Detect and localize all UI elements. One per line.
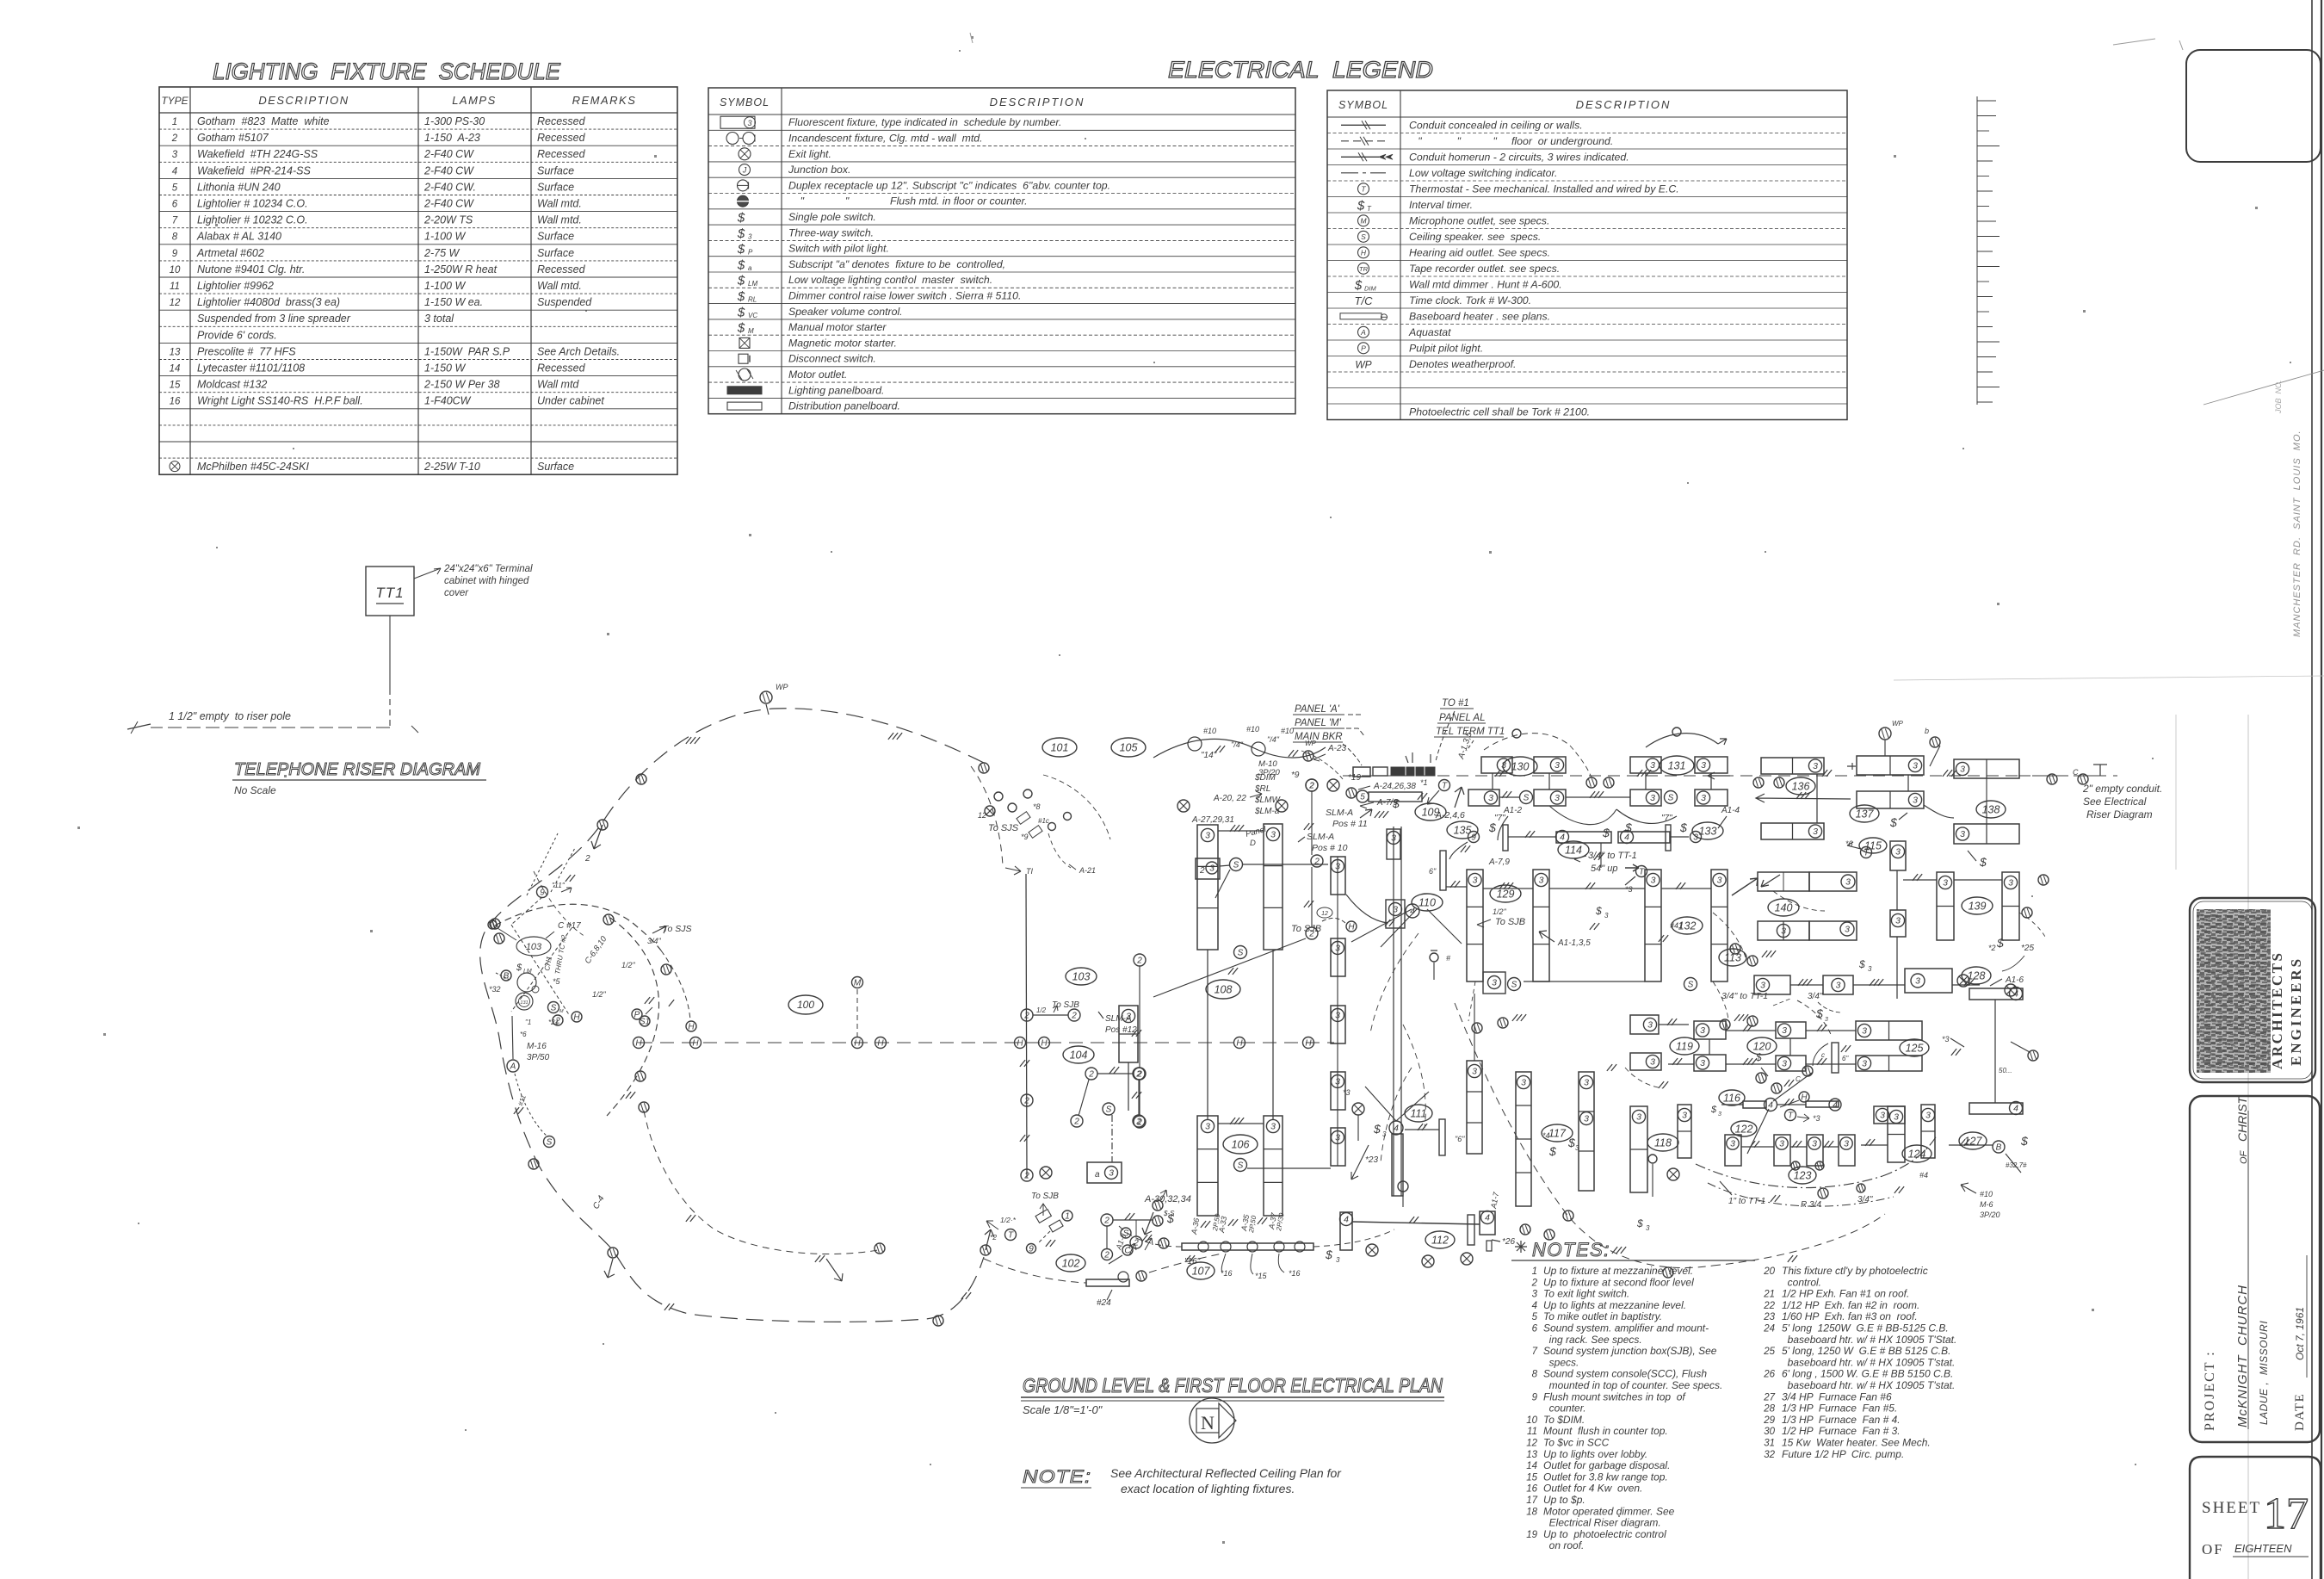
- svg-text:3: 3: [1960, 829, 1965, 839]
- svg-text:2: 2: [584, 854, 590, 864]
- svg-text:Single pole switch.: Single pole switch.: [788, 211, 876, 223]
- svg-text:H: H: [573, 1013, 580, 1023]
- svg-text:1-F40CW: 1-F40CW: [424, 395, 472, 407]
- svg-text:3: 3: [1335, 1133, 1340, 1143]
- svg-text:Nutone #9401 Clg. htr.: Nutone #9401 Clg. htr.: [197, 263, 305, 276]
- svg-text:12: 12: [978, 811, 986, 820]
- svg-text:7: 7: [172, 216, 178, 226]
- svg-text:3: 3: [1532, 1290, 1538, 1300]
- svg-text:RL: RL: [748, 296, 757, 304]
- svg-text:ARCHITECTS: ARCHITECTS: [2269, 951, 2285, 1069]
- svg-text:2: 2: [1531, 1278, 1538, 1288]
- svg-text:Speaker volume control.: Speaker volume control.: [788, 306, 903, 318]
- svg-text:128: 128: [1968, 969, 1986, 981]
- svg-text:To $DIM.: To $DIM.: [1543, 1414, 1585, 1426]
- svg-text:Mount flush in counter top.: Mount flush in counter top.: [1543, 1425, 1668, 1437]
- svg-text:1/12 HP Exh. fan #2 in room.: 1/12 HP Exh. fan #2 in room.: [1782, 1299, 1919, 1311]
- svg-text:5' long, 1250 W G.E # BB 5125: 5' long, 1250 W G.E # BB 5125 C.B.: [1782, 1345, 1950, 1357]
- svg-text:Under cabinet: Under cabinet: [537, 395, 604, 407]
- svg-text:Sound system junction box(SJB): Sound system junction box(SJB), See: [1543, 1345, 1717, 1357]
- svg-text:1-150 A-23: 1-150 A-23: [424, 132, 480, 144]
- svg-text:Up to lights at mezzanine leve: Up to lights at mezzanine level.: [1543, 1299, 1686, 1311]
- svg-text:3: 3: [1335, 1077, 1340, 1087]
- svg-text:1/60 HP Exh. fan #3 on roof.: 1/60 HP Exh. fan #3 on roof.: [1782, 1310, 1918, 1322]
- svg-text:1: 1: [1532, 1266, 1537, 1277]
- svg-text:113: 113: [1724, 951, 1741, 963]
- svg-text:1-300 PS-30: 1-300 PS-30: [424, 115, 485, 127]
- svg-text:3: 3: [1782, 1025, 1787, 1036]
- svg-text:To mike outlet in baptistry.: To mike outlet in baptistry.: [1543, 1310, 1662, 1322]
- svg-text:3: 3: [1205, 831, 1210, 841]
- svg-text:H: H: [688, 1023, 695, 1032]
- svg-text:2-F40 CW: 2-F40 CW: [423, 198, 474, 210]
- svg-text:*16: *16: [1289, 1269, 1301, 1278]
- svg-text:A1-6: A1-6: [2005, 975, 2024, 985]
- svg-text:3: 3: [1554, 760, 1560, 771]
- svg-text:$: $: [1166, 1211, 1174, 1225]
- svg-text:$: $: [1815, 1006, 1823, 1020]
- svg-text:1/3 HP Furnace Fan #5.: 1/3 HP Furnace Fan #5.: [1782, 1403, 1897, 1415]
- svg-text:28: 28: [1763, 1404, 1775, 1415]
- svg-text:Riser Diagram: Riser Diagram: [2086, 808, 2153, 820]
- svg-text:PROJECT :: PROJECT :: [2203, 1350, 2217, 1431]
- svg-text:103: 103: [526, 942, 542, 952]
- svg-text:3: 3: [1492, 978, 1497, 988]
- svg-text:3: 3: [1895, 916, 1901, 926]
- svg-text:104: 104: [1070, 1049, 1088, 1061]
- svg-text:Magnetic motor starter.: Magnetic motor starter.: [788, 337, 897, 349]
- svg-text:Recessed: Recessed: [537, 263, 586, 276]
- svg-text:Aquastat: Aquastat: [1408, 326, 1451, 338]
- svg-text:*32: *32: [489, 985, 501, 994]
- svg-text:3: 3: [1382, 1130, 1387, 1138]
- svg-text:132: 132: [1678, 920, 1697, 932]
- svg-text:"6": "6": [1455, 1135, 1465, 1143]
- svg-text:Pulpit pilot light.: Pulpit pilot light.: [1409, 342, 1483, 354]
- svg-text:140: 140: [1775, 901, 1793, 913]
- svg-text:*2: *2: [1988, 944, 1996, 952]
- svg-text:Up to fixture at mezzanine le: Up to fixture at mezzanine level.: [1543, 1265, 1693, 1277]
- svg-text:P: P: [748, 249, 753, 257]
- svg-text:3: 3: [1650, 793, 1655, 803]
- svg-text:3: 3: [1717, 876, 1722, 886]
- svg-text:127: 127: [1964, 1135, 1983, 1147]
- svg-text:3: 3: [1880, 1111, 1885, 1121]
- svg-text:3: 3: [1781, 926, 1786, 937]
- svg-text:cabinet with hinged: cabinet with hinged: [444, 576, 529, 586]
- svg-text:No Scale: No Scale: [234, 784, 276, 796]
- svg-text:3: 3: [1894, 1112, 1899, 1123]
- svg-text:1/2: 1/2: [1036, 1006, 1047, 1014]
- svg-text:$: $: [516, 963, 522, 973]
- svg-text:EIGHTEEN: EIGHTEEN: [2234, 1542, 2292, 1555]
- svg-text:3: 3: [1862, 1059, 1867, 1069]
- svg-text:*8: *8: [1033, 802, 1041, 811]
- svg-text:Distribution panelboard.: Distribution panelboard.: [788, 400, 900, 412]
- svg-text:3: 3: [748, 232, 752, 240]
- svg-text:DESCRIPTION: DESCRIPTION: [258, 94, 349, 107]
- svg-text:T: T: [1361, 185, 1366, 194]
- svg-text:3/4": 3/4": [1857, 1195, 1873, 1204]
- svg-text:107: 107: [1192, 1265, 1211, 1277]
- svg-text:OF: OF: [2202, 1541, 2224, 1557]
- svg-text:Hearing aid outlet. See specs.: Hearing aid outlet. See specs.: [1409, 246, 1550, 258]
- svg-text:Suspended: Suspended: [537, 296, 592, 308]
- svg-text:LAMPS: LAMPS: [452, 94, 497, 107]
- svg-text:*26: *26: [1502, 1237, 1515, 1247]
- svg-text:3: 3: [1270, 830, 1276, 840]
- svg-text:3: 3: [1813, 761, 1818, 771]
- svg-text:Lightolier # 10232 C.O.: Lightolier # 10232 C.O.: [197, 214, 308, 226]
- svg-text:2-F40 CW: 2-F40 CW: [423, 148, 474, 160]
- svg-text:2: 2: [1135, 1070, 1141, 1080]
- svg-text:1-250W R heat: 1-250W R heat: [424, 263, 498, 276]
- svg-text:6: 6: [172, 200, 178, 210]
- svg-text:A-24,26,38: A-24,26,38: [1373, 782, 1416, 791]
- svg-text:13: 13: [1526, 1450, 1537, 1460]
- svg-text:137: 137: [1856, 808, 1875, 820]
- svg-text:Wakefield #TH 224G-SS: Wakefield #TH 224G-SS: [197, 148, 318, 160]
- svg-text:Duplex receptacle up 12". Subs: Duplex receptacle up 12". Subscript "c" …: [788, 179, 1110, 191]
- svg-text:D: D: [1250, 839, 1256, 848]
- svg-text:Gotham #5107: Gotham #5107: [197, 132, 269, 144]
- svg-text:$: $: [737, 274, 745, 288]
- svg-text:Recessed: Recessed: [537, 148, 586, 160]
- svg-text:#32,7#: #32,7#: [2006, 1161, 2027, 1169]
- svg-text:A-30,32,34: A-30,32,34: [1144, 1194, 1191, 1204]
- svg-text:3: 3: [172, 150, 178, 160]
- svg-text:M: M: [748, 327, 754, 335]
- svg-text:Conduit homerun - 2 circuits,: Conduit homerun - 2 circuits, 3 wires in…: [1409, 151, 1629, 163]
- svg-text:1" to TT-1: 1" to TT-1: [1728, 1197, 1765, 1206]
- svg-text:*2: *2: [990, 1233, 997, 1242]
- svg-text:SYMBOL: SYMBOL: [1338, 99, 1388, 111]
- svg-text:29: 29: [1763, 1415, 1775, 1426]
- svg-text:2: 2: [1136, 957, 1142, 966]
- svg-text:120: 120: [1753, 1040, 1771, 1052]
- svg-text:Denotes weatherproof.: Denotes weatherproof.: [1409, 358, 1516, 370]
- svg-text:MANCHESTER RD. SAINT LOUIS: MANCHESTER RD. SAINT LOUIS MO.: [2292, 430, 2302, 637]
- svg-text:6: 6: [1532, 1324, 1538, 1334]
- svg-text:3: 3: [1682, 1111, 1687, 1121]
- svg-text:133: 133: [1699, 825, 1717, 837]
- svg-text:Scale 1/8"=1'-0": Scale 1/8"=1'-0": [1023, 1403, 1103, 1416]
- svg-text:SLM-A: SLM-A: [1326, 808, 1353, 818]
- svg-text:3: 3: [1760, 981, 1765, 991]
- svg-text:Sound system. amplifier and mo: Sound system. amplifier and mount-: [1543, 1322, 1709, 1334]
- svg-text:15: 15: [1526, 1472, 1537, 1483]
- svg-text:M: M: [559, 1009, 564, 1014]
- svg-text:1: 1: [1065, 1212, 1070, 1222]
- svg-text:#10: #10: [1281, 727, 1294, 735]
- svg-text:*3: *3: [1942, 1035, 1950, 1043]
- svg-text:A1-4: A1-4: [1721, 806, 1740, 815]
- svg-text:Lighting panelboard.: Lighting panelboard.: [788, 384, 884, 396]
- svg-text:Suspended from 3 line spreader: Suspended from 3 line spreader: [197, 313, 351, 325]
- svg-text:H: H: [1348, 923, 1355, 932]
- svg-text:S: S: [1238, 949, 1244, 958]
- svg-text:TYPE: TYPE: [161, 95, 189, 107]
- svg-text:$: $: [1595, 905, 1602, 917]
- svg-text:*25: *25: [2021, 944, 2034, 953]
- svg-text:Subscript "a" denotes fixture: Subscript "a" denotes fixture to be cont…: [788, 258, 1005, 270]
- svg-text:Recessed: Recessed: [537, 362, 586, 375]
- svg-text:25: 25: [1763, 1347, 1775, 1357]
- svg-text:$: $: [1567, 1136, 1575, 1149]
- svg-text:1/2 HP Furnace Fan # 3.: 1/2 HP Furnace Fan # 3.: [1782, 1425, 1901, 1437]
- svg-text:$: $: [1889, 815, 1897, 829]
- svg-text:baseboard htr. w/ # HX 10905 T: baseboard htr. w/ # HX 10905 T'stat.: [1782, 1379, 1955, 1391]
- svg-text:122: 122: [1735, 1123, 1753, 1135]
- svg-text:SYMBOL: SYMBOL: [720, 96, 770, 108]
- svg-text:19: 19: [1526, 1530, 1537, 1540]
- svg-text:JOB NO.: JOB NO.: [2274, 380, 2283, 414]
- svg-text:DESCRIPTION: DESCRIPTION: [1576, 98, 1672, 111]
- svg-text:Pos #12: Pos #12: [1105, 1025, 1137, 1035]
- svg-text:5' long 1250W G.E # BB-5125: 5' long 1250W G.E # BB-5125 C.B.: [1782, 1322, 1949, 1334]
- svg-text:$: $: [1325, 1248, 1332, 1261]
- svg-text:T: T: [1442, 782, 1448, 791]
- svg-text:A-21: A-21: [1079, 866, 1096, 875]
- svg-text:To SJB: To SJB: [1291, 924, 1321, 934]
- svg-text:9: 9: [172, 249, 178, 259]
- svg-text:Photoelectric cell shall be To: Photoelectric cell shall be Tork # 2100.: [1409, 406, 1590, 418]
- svg-text:4: 4: [1624, 833, 1629, 843]
- svg-text:ELECTRICAL LEGEND: ELECTRICAL LEGEND: [1168, 57, 1433, 83]
- svg-text:Switch with pilot light.: Switch with pilot light.: [788, 243, 889, 255]
- svg-text:VC: VC: [748, 312, 757, 319]
- svg-text:NOTES:: NOTES:: [1532, 1239, 1610, 1260]
- svg-text:PANEL AL: PANEL AL: [1439, 713, 1486, 723]
- svg-text:101: 101: [1051, 741, 1069, 753]
- svg-text:3: 3: [1205, 1122, 1210, 1132]
- svg-text:6": 6": [1842, 1055, 1849, 1062]
- svg-text:131: 131: [1668, 759, 1686, 771]
- svg-text:3: 3: [1270, 1122, 1276, 1132]
- svg-text:Pos # 11: Pos # 11: [1332, 819, 1368, 829]
- svg-text:115: 115: [1864, 839, 1882, 851]
- svg-text:3: 3: [1575, 1144, 1579, 1152]
- svg-text:*1: *1: [1420, 778, 1428, 787]
- svg-text:Electrical Riser diagram.: Electrical Riser diagram.: [1543, 1517, 1661, 1529]
- svg-text:Surface: Surface: [537, 181, 574, 193]
- svg-text:136: 136: [1792, 780, 1810, 792]
- svg-text:A1-2: A1-2: [1503, 806, 1523, 815]
- svg-text:Outlet for 4 Kw oven.: Outlet for 4 Kw oven.: [1543, 1483, 1642, 1495]
- svg-text:2: 2: [1313, 858, 1320, 867]
- svg-text:#10: #10: [1246, 725, 1259, 734]
- svg-text:3P/50: 3P/50: [527, 1053, 550, 1062]
- svg-text:$: $: [737, 289, 745, 304]
- svg-text:Ceiling speaker. see specs.: Ceiling speaker. see specs.: [1409, 231, 1541, 243]
- svg-text:#4: #4: [1919, 1171, 1928, 1180]
- svg-text:"/4": "/4": [1231, 740, 1244, 749]
- svg-text:3/4" to TT-1: 3/4" to TT-1: [1588, 851, 1637, 861]
- svg-text:$: $: [1373, 1122, 1381, 1136]
- svg-text:S: S: [1511, 981, 1517, 990]
- svg-text:Wall mtd.: Wall mtd.: [537, 214, 582, 226]
- svg-text:exact location of lighting fix: exact location of lighting fixtures.: [1121, 1482, 1295, 1495]
- svg-text:5: 5: [1360, 793, 1365, 802]
- svg-text:*3: *3: [1343, 1088, 1351, 1097]
- svg-text:$: $: [737, 321, 745, 336]
- svg-text:Lytecaster #1101/1108: Lytecaster #1101/1108: [197, 362, 305, 375]
- svg-text:C #17: C #17: [558, 921, 581, 931]
- svg-text:"14": "14": [1201, 751, 1217, 760]
- svg-text:9: 9: [1532, 1392, 1538, 1403]
- svg-text:2: 2: [1023, 1012, 1029, 1021]
- svg-text:3: 3: [1943, 878, 1948, 889]
- svg-text:To $vc in SCC: To $vc in SCC: [1543, 1437, 1610, 1449]
- svg-text:131: 131: [520, 1000, 528, 1006]
- svg-text:a: a: [748, 264, 752, 272]
- svg-text:a: a: [1095, 1170, 1100, 1180]
- svg-text:3: 3: [1913, 761, 1918, 771]
- svg-text:cover: cover: [444, 588, 469, 598]
- svg-text:on roof.: on roof.: [1543, 1539, 1584, 1551]
- svg-text:15 Kw Water heater. See Mech.: 15 Kw Water heater. See Mech.: [1782, 1437, 1931, 1449]
- svg-text:SLM-A: SLM-A: [1307, 832, 1334, 842]
- svg-text:3/4": 3/4": [1808, 992, 1823, 1001]
- svg-text:22: 22: [1763, 1301, 1775, 1311]
- svg-text:H: H: [1236, 1039, 1243, 1049]
- svg-text:A1-1,3,5: A1-1,3,5: [1557, 938, 1591, 948]
- svg-text:#24: #24: [1097, 1298, 1111, 1308]
- svg-text:24"x24"x6" Terminal: 24"x24"x6" Terminal: [443, 564, 533, 574]
- svg-text:$: $: [737, 242, 745, 257]
- svg-text:103: 103: [1072, 970, 1091, 982]
- svg-text:4: 4: [1394, 1124, 1399, 1134]
- svg-text:$RL: $RL: [1254, 784, 1270, 794]
- svg-text:Motor operated dimmer. See: Motor operated dimmer. See: [1543, 1505, 1675, 1517]
- svg-text:6": 6": [1429, 867, 1437, 876]
- svg-text:To SJS: To SJS: [988, 823, 1019, 833]
- svg-text:3: 3: [1393, 905, 1398, 915]
- svg-text:2" empty conduit.: 2" empty conduit.: [2082, 783, 2162, 795]
- svg-text:2: 2: [1023, 1097, 1029, 1106]
- svg-text:S: S: [1238, 1161, 1244, 1171]
- svg-text:24: 24: [1763, 1324, 1775, 1334]
- svg-text:2-F40 CW: 2-F40 CW: [423, 164, 474, 176]
- svg-text:LM: LM: [523, 969, 532, 975]
- svg-text:3: 3: [1335, 944, 1340, 954]
- svg-text:3: 3: [1895, 847, 1901, 858]
- svg-text:Manual motor starter: Manual motor starter: [788, 321, 887, 333]
- svg-text:Junction box.: Junction box.: [788, 164, 850, 176]
- svg-text:LADUE , MISSOURI: LADUE , MISSOURI: [2258, 1321, 2270, 1425]
- svg-text:Incandescent fixture, Clg. mtd: Incandescent fixture, Clg. mtd - wall mt…: [788, 133, 983, 145]
- svg-text:GROUND LEVEL & FIRST FLOOR ELE: GROUND LEVEL & FIRST FLOOR ELECTRICAL PL…: [1023, 1374, 1443, 1396]
- svg-text:3: 3: [1812, 1139, 1817, 1149]
- svg-text:3P/20: 3P/20: [1258, 768, 1281, 777]
- svg-text:TR: TR: [1359, 265, 1369, 273]
- svg-text:See Architectural Reflected Ce: See Architectural Reflected Ceiling Plan…: [1110, 1466, 1342, 1480]
- svg-text:C: C: [1124, 1247, 1131, 1256]
- svg-text:123: 123: [1794, 1169, 1812, 1181]
- svg-text:$: $: [1636, 1217, 1643, 1229]
- svg-text:$: $: [737, 211, 745, 226]
- svg-text:Time clock. Tork # W-300.: Time clock. Tork # W-300.: [1409, 294, 1531, 307]
- svg-text:2: 2: [1088, 1070, 1094, 1080]
- svg-text:B: B: [1996, 1143, 2002, 1153]
- svg-text:3: 3: [1646, 1224, 1650, 1232]
- svg-text:18: 18: [1526, 1507, 1537, 1517]
- svg-text:Motor outlet.: Motor outlet.: [788, 368, 847, 381]
- svg-text:1 1/2" empty to riser pole: 1 1/2" empty to riser pole: [169, 710, 291, 722]
- svg-text:H: H: [854, 1039, 861, 1049]
- svg-text:4: 4: [2013, 1104, 2018, 1114]
- svg-text:3: 3: [1488, 793, 1493, 803]
- svg-text:130: 130: [1511, 760, 1530, 772]
- svg-text:DATE: DATE: [2293, 1393, 2307, 1431]
- svg-text:3: 3: [1335, 1011, 1340, 1021]
- svg-text:*23: *23: [1365, 1155, 1378, 1165]
- svg-text:McPhilben #45C-24SKI: McPhilben #45C-24SKI: [197, 461, 309, 473]
- svg-text:baseboard htr. w/ # HX 10905 T: baseboard htr. w/ # HX 10905 T'stat.: [1782, 1356, 1955, 1368]
- svg-text:$: $: [1357, 198, 1365, 213]
- svg-text:$: $: [2020, 1134, 2028, 1148]
- svg-text:3: 3: [1650, 760, 1655, 771]
- svg-text:$: $: [1996, 936, 2004, 950]
- svg-text:SLM-A: SLM-A: [1105, 1014, 1132, 1024]
- svg-text:b: b: [1925, 727, 1929, 735]
- svg-text:8: 8: [172, 232, 178, 243]
- svg-text:27: 27: [1763, 1392, 1775, 1403]
- svg-text:WP: WP: [776, 683, 788, 691]
- svg-text:5: 5: [172, 183, 178, 193]
- svg-text:3: 3: [1701, 793, 1706, 803]
- svg-text:3/4" to TT-1: 3/4" to TT-1: [1721, 991, 1768, 1001]
- svg-text:A-20, 22: A-20, 22: [1213, 794, 1246, 803]
- svg-text:3: 3: [1868, 965, 1872, 973]
- svg-text:3: 3: [1335, 862, 1340, 872]
- svg-text:TO #1: TO #1: [1442, 698, 1469, 709]
- svg-text:PANEL 'M': PANEL 'M': [1295, 718, 1342, 728]
- svg-text:McKNIGHT CHURCH: McKNIGHT CHURCH: [2235, 1285, 2250, 1427]
- svg-text:Prescolite # 77 HFS: Prescolite # 77 HFS: [197, 345, 296, 357]
- svg-text:S: S: [547, 1138, 553, 1148]
- svg-text:1-150 W: 1-150 W: [424, 362, 466, 375]
- svg-text:*16: *16: [1221, 1269, 1233, 1278]
- svg-text:M: M: [1360, 217, 1367, 226]
- svg-text:3: 3: [747, 119, 751, 127]
- svg-text:A: A: [510, 1062, 516, 1072]
- svg-text:PANEL 'A': PANEL 'A': [1295, 704, 1340, 715]
- svg-text:S: S: [1524, 794, 1530, 803]
- svg-text:3: 3: [1636, 1112, 1641, 1123]
- svg-text:CHRIST: CHRIST: [2235, 1095, 2249, 1142]
- svg-text:Surface: Surface: [537, 164, 574, 176]
- svg-text:To SJB: To SJB: [1495, 917, 1525, 927]
- svg-text:C: C: [2073, 768, 2079, 777]
- svg-text:109: 109: [1422, 806, 1440, 818]
- svg-text:14: 14: [170, 364, 181, 375]
- svg-text:3: 3: [1844, 1139, 1849, 1149]
- svg-text:*3: *3: [1813, 1114, 1820, 1123]
- svg-text:54" up: 54" up: [1591, 864, 1617, 874]
- svg-text:1: 1: [172, 117, 177, 127]
- svg-text:*5: *5: [553, 977, 561, 986]
- svg-text:H: H: [635, 1039, 642, 1049]
- svg-text:3/4": 3/4": [647, 937, 662, 945]
- svg-text:4: 4: [1833, 1100, 1838, 1111]
- svg-text:3: 3: [1109, 1168, 1114, 1179]
- svg-text:Artmetal #602: Artmetal #602: [196, 247, 264, 259]
- svg-text:S: S: [1233, 861, 1239, 870]
- svg-text:Pos # 10: Pos # 10: [1312, 843, 1348, 853]
- svg-text:1/2": 1/2": [592, 990, 607, 999]
- svg-text:3/4 HP Furnace Fan #6: 3/4 HP Furnace Fan #6: [1782, 1390, 1892, 1403]
